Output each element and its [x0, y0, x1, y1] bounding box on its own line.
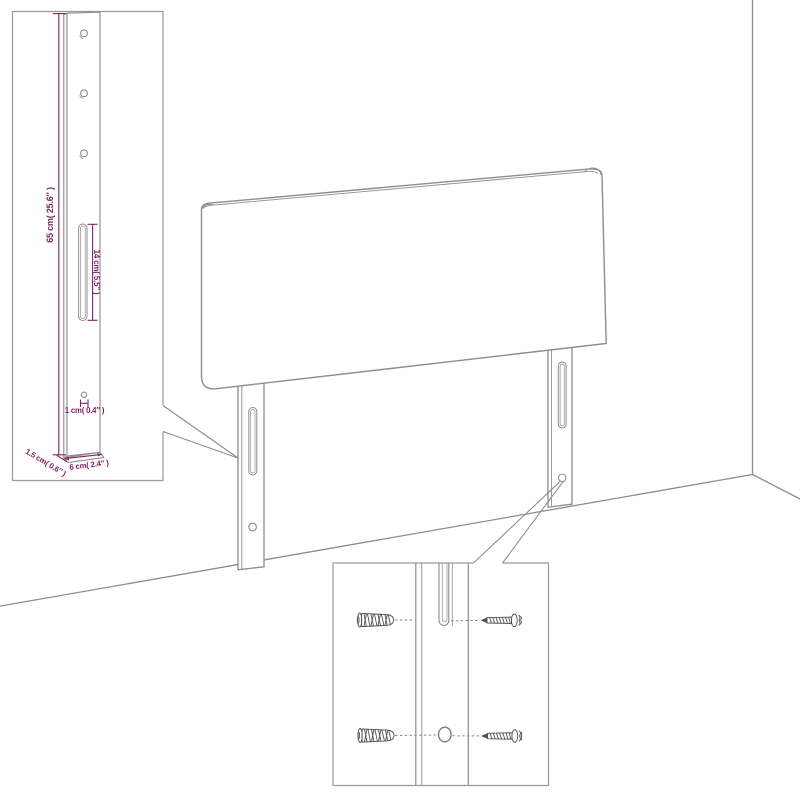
leg-detail-hole-middle [81, 90, 88, 97]
dim-hole-diameter: 1 cm( 0.4″ ) [65, 406, 105, 415]
mounting-detail-inset [333, 563, 549, 786]
leg-detail-hole-top [81, 30, 88, 37]
floor-wall-edge-right [753, 475, 800, 500]
leg-detail-callout-lines [163, 406, 238, 459]
right-leg [548, 345, 572, 507]
headboard-panel [202, 168, 607, 389]
headboard-diagram-svg: 65 cm( 25.6″ ) 14 cm( 5.5″ ) 1 cm( 0.4″ … [0, 0, 800, 800]
leg-detail-inset: 65 cm( 25.6″ ) 14 cm( 5.5″ ) 1 cm( 0.4″ … [13, 12, 164, 481]
left-leg [238, 380, 264, 570]
leg-detail-slot [79, 224, 87, 321]
left-leg-hole [249, 523, 257, 531]
leg-detail-hole-bottom [81, 150, 88, 157]
dim-leg-height: 65 cm( 25.6″ ) [45, 187, 55, 243]
mounting-detail-hole [439, 727, 452, 742]
left-leg-slot [249, 408, 257, 476]
leg-detail-small-hole [81, 392, 86, 397]
right-leg-slot [558, 362, 566, 428]
right-leg-hole [558, 474, 566, 482]
headboard-outline [202, 169, 607, 389]
mounting-detail-inset-border [333, 563, 549, 786]
dim-slot-length: 14 cm( 5.5″ ) [92, 250, 101, 295]
diagram-canvas: 65 cm( 25.6″ ) 14 cm( 5.5″ ) 1 cm( 0.4″ … [0, 0, 800, 800]
